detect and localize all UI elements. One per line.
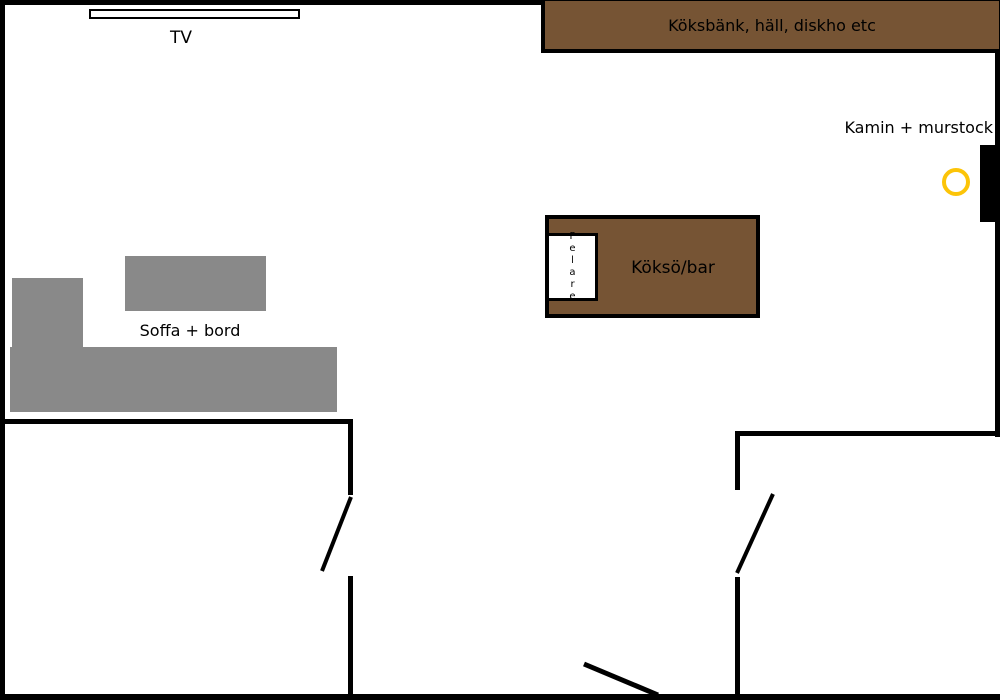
pillar-label: Pelare [567,231,577,303]
fireplace-label: Kamin + murstock [700,118,993,137]
wall-right-horizontal [735,431,1000,436]
kitchen-bench-shape: Köksbänk, häll, diskho etc [541,0,1000,53]
kitchen-island-label: Köksö/bar [598,258,748,278]
fireplace-shape [980,145,1000,222]
frame-border-left [0,0,5,700]
door-swing-right [737,494,773,573]
floor-plan-canvas: TV Köksbänk, häll, diskho etc Kamin + mu… [0,0,1000,700]
kitchen-bench-label: Köksbänk, häll, diskho etc [668,16,876,35]
door-swing-bottom [584,664,658,695]
door-swing-left [322,497,351,571]
tv-label: TV [100,28,262,48]
wall-left-horizontal [0,419,353,424]
sofa-seat-shape [10,347,337,412]
pillar-shape: Pelare [546,233,598,301]
table-shape [125,256,266,311]
wall-left-vertical-upper [348,419,353,495]
sofa-label: Soffa + bord [110,321,270,340]
yellow-circle-marker-icon [942,168,970,196]
frame-border-bottom [0,694,1000,700]
wall-left-vertical-lower [348,576,353,700]
frame-border-top [0,0,545,5]
tv-shape [89,9,300,19]
wall-right-vertical-lower [735,577,740,700]
wall-right-vertical-upper [735,431,740,490]
